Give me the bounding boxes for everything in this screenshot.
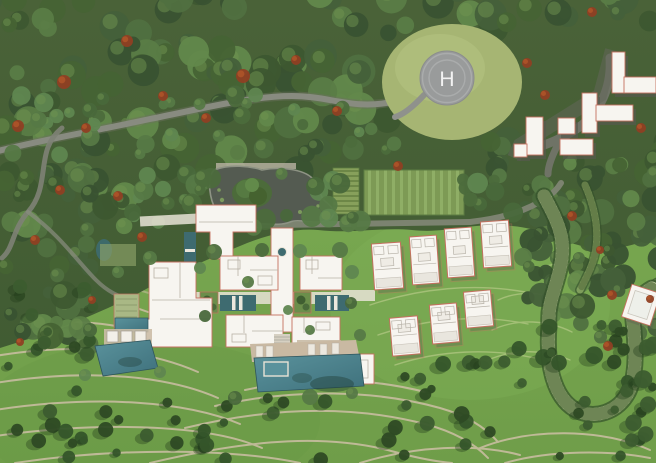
flowering-tree bbox=[201, 113, 211, 123]
tree bbox=[573, 252, 585, 264]
tree bbox=[13, 190, 25, 202]
tree bbox=[305, 325, 315, 335]
jacuzzi bbox=[264, 362, 288, 376]
tree bbox=[139, 167, 156, 184]
building bbox=[582, 93, 597, 133]
tree bbox=[154, 366, 166, 378]
tree bbox=[233, 107, 250, 124]
guest-villa bbox=[444, 227, 478, 282]
tree bbox=[1, 17, 17, 33]
tree bbox=[612, 157, 627, 172]
tree bbox=[345, 265, 359, 279]
tree bbox=[344, 12, 369, 37]
tree bbox=[30, 111, 46, 127]
tree bbox=[322, 114, 342, 134]
tree bbox=[82, 103, 97, 118]
tree bbox=[51, 146, 68, 163]
guest-villa bbox=[429, 303, 463, 348]
tree bbox=[255, 243, 269, 257]
tree bbox=[64, 107, 75, 118]
tree bbox=[288, 103, 300, 115]
tree bbox=[49, 109, 63, 123]
flowering-tree bbox=[607, 290, 617, 300]
reflecting-pool bbox=[315, 295, 349, 311]
tree bbox=[276, 168, 288, 180]
flowering-tree bbox=[81, 123, 91, 133]
tree bbox=[178, 36, 209, 67]
flowering-tree bbox=[236, 69, 250, 83]
axis-fountain bbox=[278, 248, 287, 257]
tree bbox=[34, 93, 53, 112]
green-parking-court bbox=[364, 170, 464, 215]
tree bbox=[301, 206, 322, 227]
flowering-tree bbox=[88, 296, 96, 304]
tree bbox=[4, 307, 17, 320]
tree bbox=[143, 251, 157, 265]
tree bbox=[332, 242, 348, 258]
cabanas bbox=[107, 331, 146, 342]
tree bbox=[83, 323, 97, 337]
tree bbox=[319, 209, 338, 228]
tree bbox=[297, 119, 308, 130]
tree bbox=[10, 65, 25, 80]
helipad-h-mark: H bbox=[439, 68, 454, 91]
building bbox=[624, 77, 656, 93]
tree bbox=[563, 157, 576, 170]
building bbox=[558, 118, 575, 134]
site-plan-rendering: H bbox=[0, 0, 656, 463]
flowering-tree bbox=[540, 90, 550, 100]
tree bbox=[14, 323, 31, 340]
tree bbox=[345, 297, 357, 309]
tree bbox=[50, 268, 64, 282]
tree bbox=[80, 222, 94, 236]
flowering-tree bbox=[636, 123, 646, 133]
tree bbox=[165, 128, 179, 142]
flowering-tree bbox=[30, 235, 40, 245]
tree bbox=[254, 138, 274, 158]
flowering-tree bbox=[596, 246, 604, 254]
flowering-tree bbox=[603, 341, 613, 351]
tree bbox=[570, 293, 596, 319]
guest-villa bbox=[463, 290, 496, 332]
tree bbox=[199, 310, 211, 322]
building bbox=[612, 52, 625, 93]
building bbox=[526, 117, 543, 155]
tree bbox=[228, 391, 242, 405]
guest-villa bbox=[409, 235, 443, 289]
flowering-tree bbox=[158, 91, 168, 101]
main-pool-area bbox=[250, 340, 364, 392]
flowering-tree bbox=[55, 185, 65, 195]
tree bbox=[354, 127, 365, 138]
building bbox=[514, 144, 527, 157]
tree bbox=[345, 136, 357, 148]
tree bbox=[4, 145, 21, 162]
flowering-tree bbox=[12, 120, 24, 132]
tree bbox=[486, 182, 505, 201]
tree bbox=[124, 204, 141, 221]
tree bbox=[354, 329, 366, 341]
tree bbox=[283, 305, 293, 315]
guest-villa bbox=[480, 220, 514, 272]
flowering-tree bbox=[587, 7, 597, 17]
flowering-tree bbox=[57, 75, 71, 89]
tree bbox=[346, 387, 358, 399]
tree bbox=[306, 177, 325, 196]
tree bbox=[194, 184, 205, 195]
tree bbox=[230, 145, 245, 160]
tree bbox=[545, 0, 572, 26]
tree bbox=[154, 154, 181, 181]
flowering-tree bbox=[291, 55, 301, 65]
guest-villa bbox=[389, 316, 424, 361]
tree bbox=[155, 181, 171, 197]
helipad: H bbox=[420, 51, 474, 105]
building bbox=[596, 105, 633, 121]
flowering-tree bbox=[332, 106, 342, 116]
tree bbox=[226, 85, 245, 104]
tree bbox=[12, 86, 31, 105]
tree-shadow-on-pool bbox=[118, 357, 142, 367]
flowering-tree bbox=[113, 191, 123, 201]
tree bbox=[497, 12, 517, 32]
tree bbox=[135, 148, 146, 159]
tree bbox=[96, 92, 109, 105]
tree bbox=[467, 173, 488, 194]
tree bbox=[242, 276, 254, 288]
tree bbox=[81, 185, 99, 203]
tree bbox=[330, 173, 351, 194]
tree bbox=[396, 16, 414, 34]
tree bbox=[387, 136, 401, 150]
tree bbox=[307, 139, 323, 155]
parking-garden bbox=[333, 168, 464, 215]
tree bbox=[259, 110, 275, 126]
tree bbox=[194, 98, 206, 110]
tree bbox=[302, 389, 318, 405]
flowering-tree bbox=[522, 58, 532, 68]
tree bbox=[280, 209, 293, 222]
tree bbox=[112, 266, 124, 278]
tree bbox=[610, 6, 625, 21]
flowering-tree bbox=[121, 35, 133, 47]
tree bbox=[591, 165, 605, 179]
flowering-tree bbox=[567, 211, 577, 221]
tree bbox=[481, 132, 501, 152]
flowering-tree bbox=[137, 232, 147, 242]
tree bbox=[206, 244, 222, 260]
tree bbox=[293, 244, 307, 258]
flowering-tree bbox=[646, 295, 654, 303]
tree bbox=[380, 25, 397, 42]
guest-villa bbox=[371, 242, 406, 294]
flowering-tree bbox=[16, 338, 24, 346]
tree bbox=[248, 88, 263, 103]
tree bbox=[159, 100, 169, 110]
tree bbox=[503, 203, 523, 223]
tree bbox=[32, 8, 54, 30]
tree bbox=[213, 130, 225, 142]
tree bbox=[162, 197, 175, 210]
tree bbox=[194, 170, 212, 188]
tree-shadow-on-pool bbox=[292, 373, 312, 383]
tree bbox=[310, 48, 335, 73]
tree bbox=[78, 236, 95, 253]
tree bbox=[37, 238, 56, 257]
tree bbox=[79, 369, 91, 381]
tree bbox=[627, 212, 646, 231]
pond-island bbox=[232, 178, 272, 208]
tree bbox=[523, 261, 535, 273]
tree bbox=[463, 192, 477, 206]
building bbox=[560, 139, 593, 155]
tree bbox=[365, 123, 377, 135]
tree bbox=[603, 244, 615, 256]
tree bbox=[347, 211, 359, 223]
tree bbox=[194, 262, 206, 274]
tree bbox=[347, 60, 371, 84]
tree bbox=[18, 170, 34, 186]
tree bbox=[622, 190, 639, 207]
flowering-tree bbox=[393, 161, 403, 171]
tree bbox=[128, 55, 159, 86]
reflecting-pool bbox=[220, 295, 256, 311]
